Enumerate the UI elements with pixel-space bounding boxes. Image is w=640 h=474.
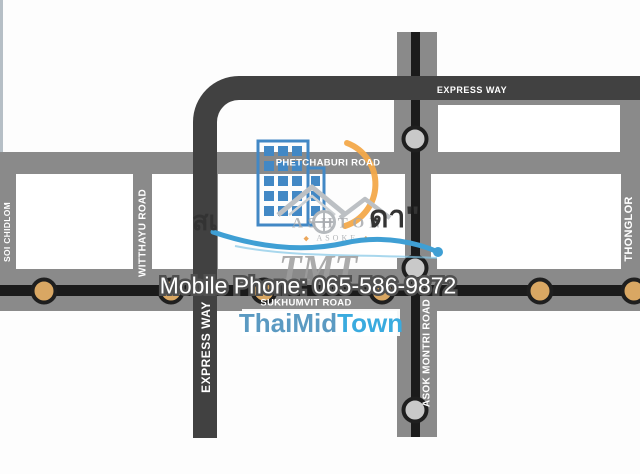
soi-chidlom-road-label: SOI CHIDLOM	[2, 202, 12, 262]
phetchaburi-road-label: PHETCHABURI ROAD	[276, 158, 381, 169]
bts-station-marker	[621, 278, 640, 305]
soi-chidlom-upper-edge	[0, 0, 3, 152]
asok-montri-road-label: ASOK MONTRI ROAD	[422, 299, 433, 407]
thai-text-fragment-left: สเ	[192, 208, 218, 235]
thai-text-fragment-right: ดา"	[369, 203, 420, 233]
city-block	[16, 174, 133, 270]
city-block	[152, 174, 193, 270]
site-name: ThaiMidTown	[239, 310, 403, 336]
mrt-station-marker	[402, 126, 429, 153]
site-name-box: ThaiMidTown	[242, 309, 400, 336]
express-way-label-horizontal: EXPRESS WAY	[437, 85, 507, 95]
thonglor-road-label: THONGLOR	[623, 196, 635, 261]
witthayu-road-label: WITTHAYU ROAD	[138, 189, 149, 277]
map-canvas: ASHTON ◆ ASOKE ◆ สเ ดา" EXPRESS WAY EXPR…	[0, 0, 640, 474]
bts-station-marker	[31, 278, 58, 305]
express-way-label-vertical: EXPRESS WAY	[199, 301, 213, 393]
phone-number-watermark: Mobile Phone: 065-586-9872	[160, 273, 457, 300]
bts-station-marker	[527, 278, 554, 305]
